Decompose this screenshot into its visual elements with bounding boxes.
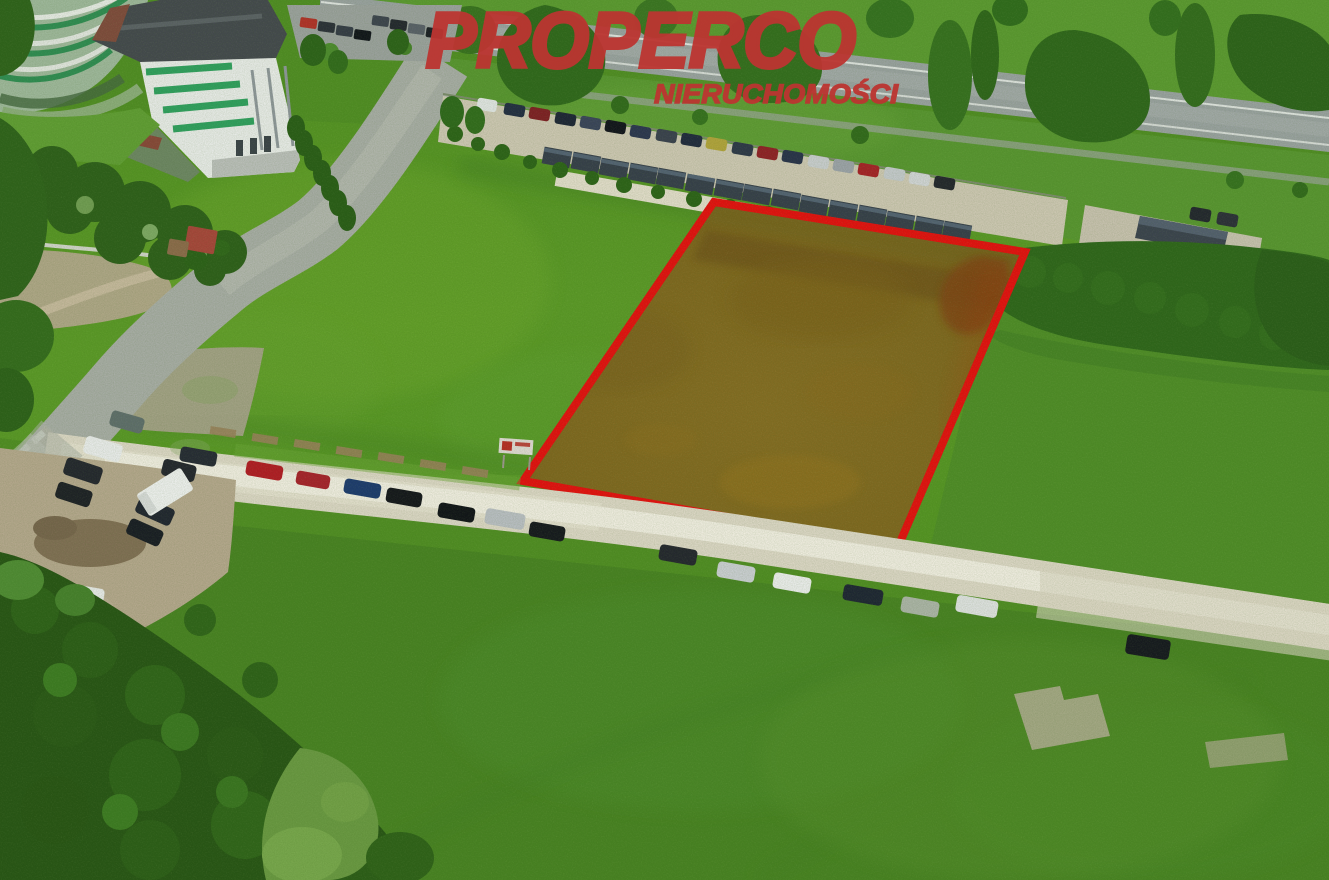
svg-text:NIERUCHOMOŚCI: NIERUCHOMOŚCI (654, 78, 899, 109)
svg-text:PROPERCO: PROPERCO (426, 0, 856, 84)
